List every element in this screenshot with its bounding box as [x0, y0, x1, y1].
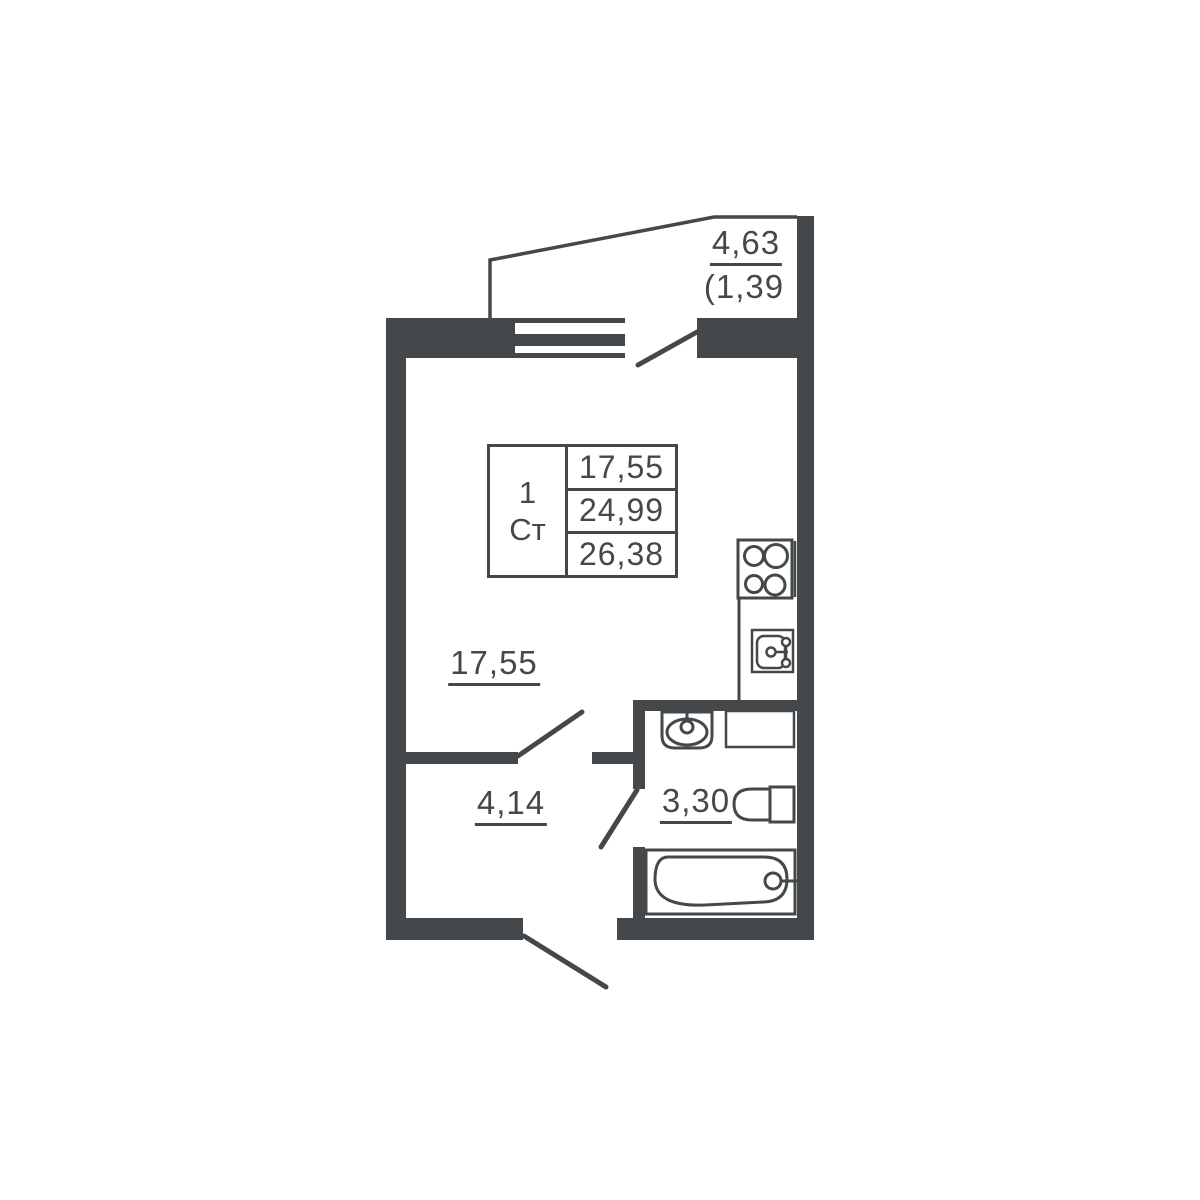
bathroom-area-label: 3,30: [660, 784, 732, 824]
info-table: 1 Ст 17,55 24,99 26,38: [487, 444, 678, 578]
bathroom-door-swing: [601, 790, 637, 847]
room-door-swing: [518, 712, 582, 756]
wall-bottom-right: [617, 918, 814, 940]
area-without-balcony-cell: 24,99: [568, 488, 675, 532]
wall-top-right: [697, 318, 814, 358]
hallway-area-label: 4,14: [475, 786, 547, 826]
info-table-unit-cell: 1 Ст: [490, 447, 568, 575]
wall-top-left: [386, 318, 515, 358]
bathroom-cabinet: [726, 711, 794, 747]
wall-partition-room-hall: [406, 752, 518, 764]
toilet-icon: [734, 787, 794, 822]
wall-right: [797, 216, 814, 940]
balcony-door-swing: [638, 332, 697, 365]
floor-plan: 4,63 (1,39 17,55 4,14 3,30 1 Ст 17,55 24…: [0, 0, 1200, 1200]
wall-bathroom-left-upper: [633, 700, 645, 789]
living-area-cell: 17,55: [568, 447, 675, 488]
wall-bottom-left: [386, 918, 523, 940]
wall-bathroom-top: [633, 700, 797, 711]
rooms-count: 1: [519, 474, 536, 511]
entrance-door-swing: [524, 936, 606, 987]
wall-partition-stub: [592, 752, 633, 764]
balcony-area-label: 4,63: [710, 226, 782, 266]
bathtub-icon: [646, 850, 800, 914]
total-area-cell: 26,38: [568, 531, 675, 575]
kitchen-sink-icon: [752, 630, 793, 672]
stove-icon: [738, 540, 795, 598]
unit-type: Ст: [509, 511, 546, 548]
balcony-reduced-area-label: (1,39: [704, 270, 784, 304]
window-icon: [515, 318, 625, 358]
floor-plan-drawing: [0, 0, 1200, 1200]
washbasin-icon: [662, 712, 712, 748]
wall-bathroom-left-lower: [633, 847, 645, 918]
main-room-area-label: 17,55: [448, 646, 540, 686]
wall-left: [386, 318, 406, 940]
